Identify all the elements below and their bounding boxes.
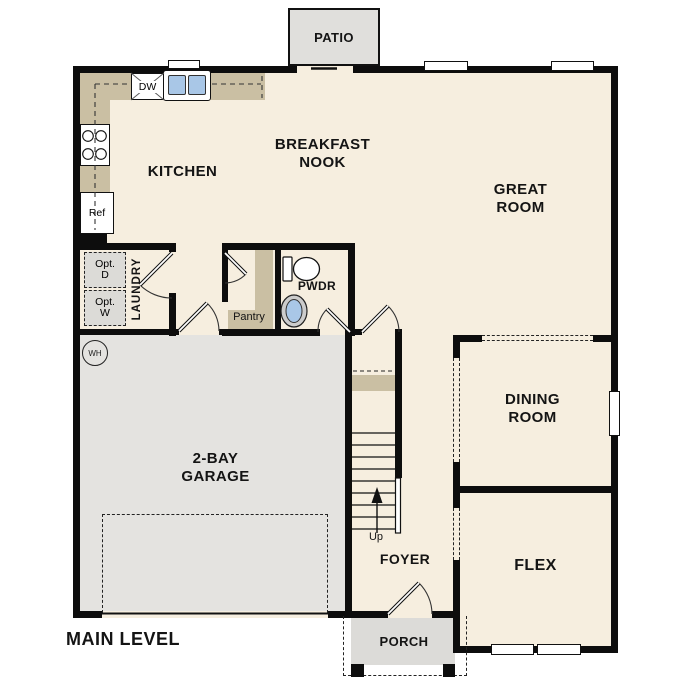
- wall-segment: [73, 611, 102, 618]
- optional-washer-label: Opt. W: [95, 297, 115, 319]
- porch-post: [351, 664, 364, 677]
- optional-dryer: Opt. D: [84, 252, 126, 288]
- window: [168, 60, 200, 69]
- wall-segment: [73, 66, 80, 618]
- wall-segment: [345, 335, 352, 611]
- refrigerator: Ref: [80, 192, 114, 234]
- patio-area: PATIO: [288, 8, 380, 66]
- wall-segment: [453, 335, 460, 358]
- cased-opening: [453, 508, 460, 560]
- window: [609, 391, 620, 436]
- optional-dryer-label: Opt. D: [95, 259, 115, 281]
- wall-segment: [593, 335, 611, 342]
- room-label-porch: PORCH: [369, 634, 439, 649]
- wall-segment: [222, 250, 228, 302]
- room-label-garage: 2-BAY GARAGE: [133, 450, 298, 485]
- garage-door-outline: [102, 514, 328, 613]
- floorplan: PATIO DW: [0, 0, 687, 687]
- room-label-laundry: LAUNDRY: [131, 244, 145, 334]
- wall-segment: [222, 330, 320, 336]
- window: [491, 644, 534, 655]
- window: [537, 644, 581, 655]
- closet-shelf: [352, 375, 395, 391]
- room-label-dining-room: DINING ROOM: [470, 391, 595, 426]
- wall-segment: [395, 329, 402, 478]
- dishwasher: DW: [131, 73, 164, 100]
- optional-washer: Opt. W: [84, 290, 126, 326]
- room-label-flex: FLEX: [473, 557, 598, 576]
- page-title: MAIN LEVEL: [66, 629, 266, 650]
- room-label-great-room: GREAT ROOM: [458, 181, 583, 216]
- sink-basin: [188, 75, 206, 95]
- window: [424, 61, 468, 71]
- wall-segment: [453, 486, 611, 493]
- window: [551, 61, 594, 71]
- wall-segment: [348, 243, 355, 336]
- room-label-breakfast-nook: BREAKFAST NOOK: [250, 136, 395, 171]
- wall-segment: [73, 329, 179, 335]
- wall-segment: [611, 66, 618, 653]
- water-heater: WH: [82, 340, 108, 366]
- wall-segment: [275, 243, 281, 336]
- sink-basin: [168, 75, 186, 95]
- cooktop: [80, 124, 110, 166]
- room-label-kitchen: KITCHEN: [125, 163, 240, 181]
- water-heater-label: WH: [88, 349, 101, 358]
- wall-segment: [453, 646, 618, 653]
- wall-segment: [169, 243, 176, 252]
- cased-opening: [482, 335, 593, 341]
- room-label-powder: PWDR: [291, 279, 343, 293]
- refrigerator-label: Ref: [89, 207, 105, 219]
- room-label-patio: PATIO: [314, 30, 354, 45]
- wall-segment: [222, 243, 355, 250]
- stairs-up-label: Up: [363, 531, 389, 544]
- room-label-foyer: FOYER: [369, 551, 441, 568]
- room-label-pantry: Pantry: [225, 311, 273, 324]
- dishwasher-label: DW: [138, 81, 158, 93]
- porch-post: [443, 664, 455, 677]
- cased-opening: [453, 358, 460, 462]
- wall-segment: [453, 493, 460, 508]
